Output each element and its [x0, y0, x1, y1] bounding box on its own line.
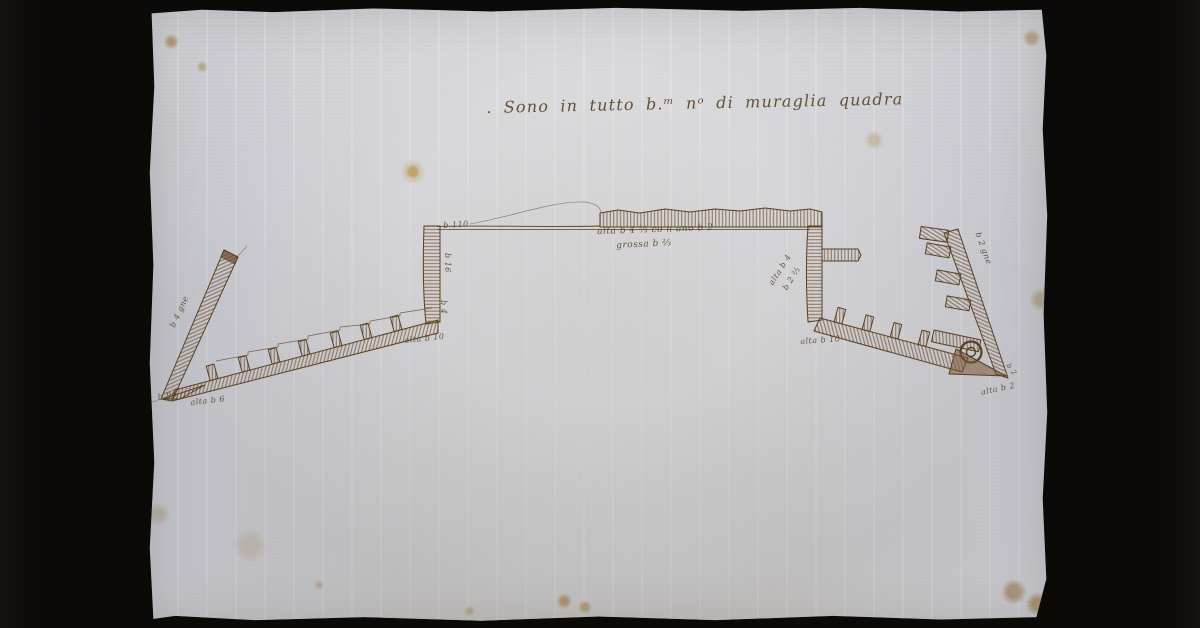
- annotation-left-wall-lower-measure: b 4: [439, 300, 448, 314]
- annotation-left-wall-upper-measure: b 16: [443, 253, 452, 273]
- annotation-top-wall-left-measure: b 110: [443, 219, 469, 230]
- scanned-manuscript-page: . Sono in tutto b.ᵐ nᵒ di muraglia quadr…: [0, 0, 1200, 628]
- right-flank-wall: [807, 226, 823, 322]
- left-rampart-wall: [172, 320, 438, 401]
- right-flank-spur: [822, 249, 861, 261]
